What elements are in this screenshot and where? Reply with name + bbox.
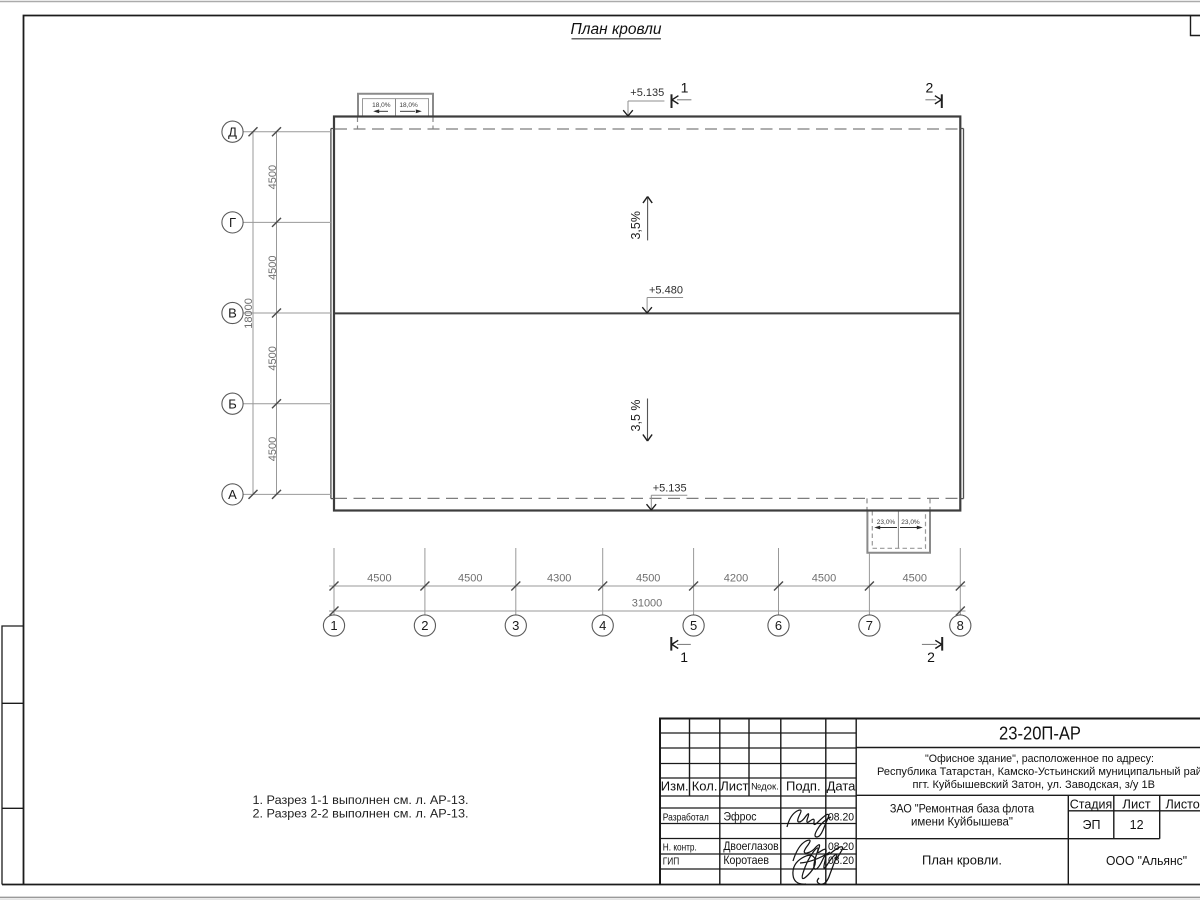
svg-text:3,5 %: 3,5 % (629, 400, 643, 432)
svg-text:31000: 31000 (632, 598, 663, 610)
svg-text:18,0%: 18,0% (399, 102, 418, 109)
svg-text:Республика Татарстан, Камско-У: Республика Татарстан, Камско-Устьинский … (877, 766, 1200, 778)
svg-text:В: В (228, 306, 237, 321)
svg-text:4500: 4500 (267, 437, 279, 461)
svg-text:4500: 4500 (636, 573, 660, 585)
svg-text:Листов: Листов (1166, 798, 1200, 812)
svg-text:План кровли.: План кровли. (922, 853, 1002, 868)
svg-text:6: 6 (775, 618, 782, 633)
svg-text:Б: Б (228, 396, 237, 411)
svg-text:ЗАО "Ремонтная база флота: ЗАО "Ремонтная база флота (890, 803, 1035, 815)
svg-text:Подп.: Подп. (786, 779, 821, 794)
svg-text:№док.: №док. (751, 782, 779, 793)
svg-text:7: 7 (866, 618, 873, 633)
svg-text:ЭП: ЭП (1083, 818, 1101, 832)
svg-text:Г: Г (229, 215, 236, 230)
svg-text:23-20П-АР: 23-20П-АР (999, 724, 1081, 744)
svg-text:1: 1 (330, 618, 337, 633)
svg-text:1. Разрез 1-1 выполнен см. л.: 1. Разрез 1-1 выполнен см. л. АР-13. (253, 793, 469, 807)
svg-text:4200: 4200 (724, 573, 748, 585)
svg-text:Н. контр.: Н. контр. (663, 841, 697, 853)
svg-text:08.20: 08.20 (828, 811, 854, 823)
svg-text:пгт. Куйбышевский Затон, ул. З: пгт. Куйбышевский Затон, ул. Заводская, … (913, 779, 1156, 791)
svg-text:Двоеглазов: Двоеглазов (723, 839, 778, 853)
svg-text:4500: 4500 (267, 346, 279, 370)
svg-text:8: 8 (957, 618, 964, 633)
svg-text:имени Куйбышева": имени Куйбышева" (911, 817, 1013, 829)
svg-text:4300: 4300 (547, 573, 571, 585)
svg-text:4: 4 (599, 618, 606, 633)
svg-text:ГИП: ГИП (663, 856, 680, 868)
svg-text:23,0%: 23,0% (877, 519, 896, 526)
svg-text:Разработал: Разработал (663, 812, 709, 824)
svg-text:Изм.: Изм. (661, 779, 689, 794)
svg-text:4500: 4500 (903, 573, 927, 585)
svg-text:Коротаев: Коротаев (723, 853, 769, 867)
svg-text:Эфрос: Эфрос (724, 809, 757, 823)
svg-text:4500: 4500 (812, 573, 836, 585)
svg-text:4500: 4500 (367, 573, 391, 585)
svg-text:ООО "Альянс": ООО "Альянс" (1106, 853, 1187, 868)
svg-text:3,5%: 3,5% (629, 211, 643, 240)
svg-text:2: 2 (926, 80, 934, 96)
svg-text:+5.135: +5.135 (653, 482, 687, 494)
svg-text:2: 2 (927, 649, 935, 665)
svg-text:4500: 4500 (458, 573, 482, 585)
svg-text:А: А (228, 487, 237, 502)
svg-text:Кол.: Кол. (692, 779, 718, 794)
svg-text:23,0%: 23,0% (901, 519, 920, 526)
svg-text:3: 3 (512, 618, 519, 633)
svg-text:18000: 18000 (243, 298, 255, 329)
svg-text:"Офисное здание", расположенно: "Офисное здание", расположенное по адрес… (925, 753, 1154, 765)
svg-text:+5.135: +5.135 (630, 87, 664, 99)
svg-text:2. Разрез 2-2 выполнен см. л.: 2. Разрез 2-2 выполнен см. л. АР-13. (253, 807, 469, 821)
svg-text:План кровли: План кровли (571, 21, 662, 38)
svg-text:1: 1 (680, 649, 688, 665)
svg-text:2: 2 (421, 618, 428, 633)
svg-text:Лист: Лист (1122, 798, 1151, 812)
svg-text:5: 5 (690, 618, 697, 633)
svg-text:1: 1 (681, 80, 689, 96)
svg-text:4500: 4500 (267, 165, 279, 189)
svg-text:Стадия: Стадия (1070, 798, 1113, 812)
svg-text:18,0%: 18,0% (372, 102, 391, 109)
svg-text:08.20: 08.20 (828, 855, 854, 867)
svg-text:Лист: Лист (720, 779, 748, 794)
svg-text:12: 12 (1130, 818, 1144, 832)
svg-text:Д: Д (228, 124, 237, 139)
svg-text:Дата: Дата (827, 779, 857, 794)
svg-text:4500: 4500 (267, 255, 279, 279)
svg-text:+5.480: +5.480 (649, 284, 683, 296)
